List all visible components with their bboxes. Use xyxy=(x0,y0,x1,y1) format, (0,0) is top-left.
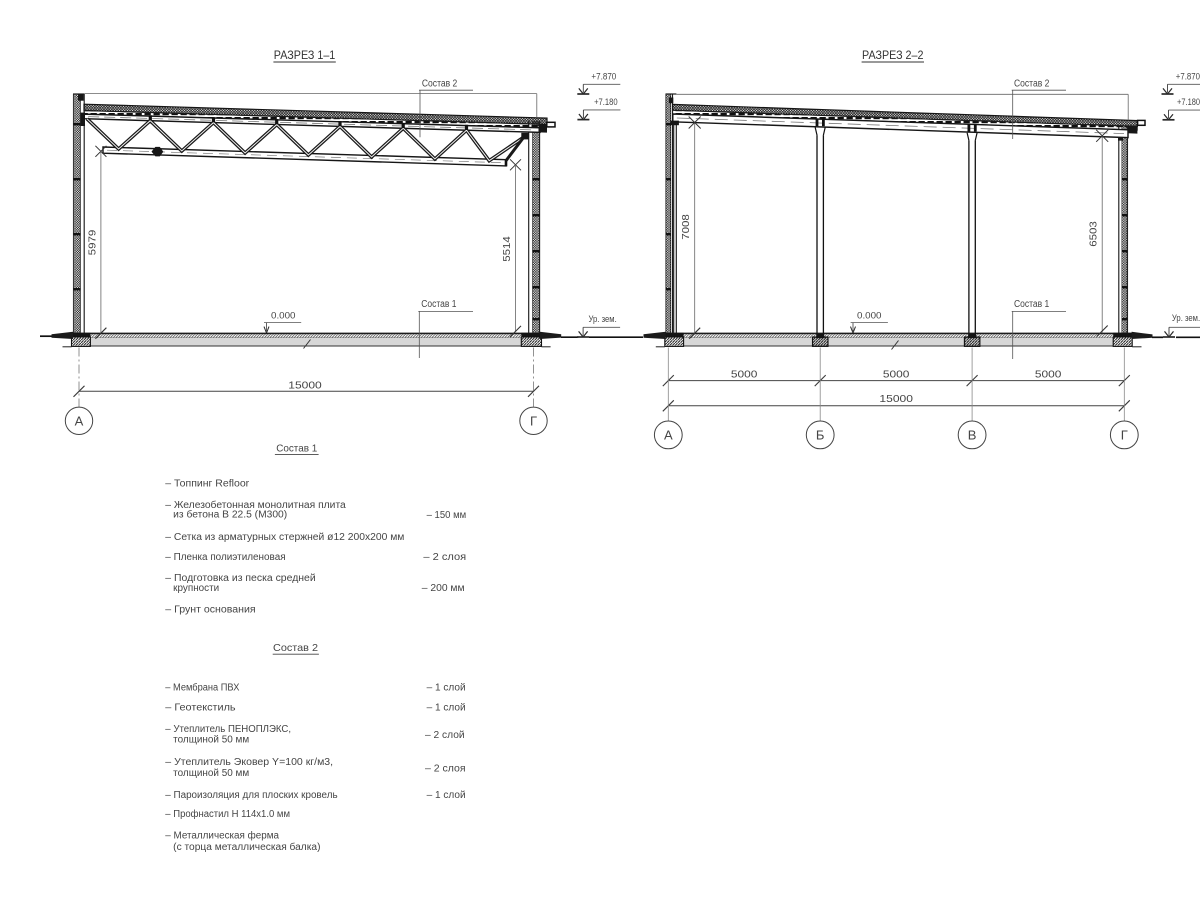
svg-text:Состав 1: Состав 1 xyxy=(276,444,317,455)
svg-text:5000: 5000 xyxy=(883,369,910,381)
svg-text:5979: 5979 xyxy=(88,229,99,255)
svg-text:из бетона В 22.5 (М300): из бетона В 22.5 (М300) xyxy=(173,510,287,521)
svg-text:15000: 15000 xyxy=(879,393,913,405)
svg-text:5514: 5514 xyxy=(502,236,513,262)
svg-text:толщиной 50 мм: толщиной 50 мм xyxy=(173,768,249,779)
svg-text:– Сетка из арматурных стержней: – Сетка из арматурных стержней ø12 200х2… xyxy=(165,532,404,543)
svg-text:– Грунт основания: – Грунт основания xyxy=(165,605,255,616)
svg-text:5000: 5000 xyxy=(731,369,758,381)
svg-text:Б: Б xyxy=(816,428,825,443)
svg-text:– Металлическая ферма: – Металлическая ферма xyxy=(165,831,279,842)
svg-text:Состав 1: Состав 1 xyxy=(421,299,456,310)
svg-text:Состав 2: Состав 2 xyxy=(1014,78,1049,89)
svg-text:Состав 1: Состав 1 xyxy=(1014,299,1049,310)
svg-text:Ур. зем.: Ур. зем. xyxy=(1172,313,1200,324)
svg-text:Г: Г xyxy=(530,414,537,429)
svg-text:Состав 2: Состав 2 xyxy=(273,643,318,654)
svg-text:– 1 слой: – 1 слой xyxy=(427,682,466,693)
svg-text:– 200 мм: – 200 мм xyxy=(422,583,465,594)
svg-text:(с торца металлическая балка): (с торца металлическая балка) xyxy=(173,842,320,853)
svg-text:5000: 5000 xyxy=(1035,369,1062,381)
svg-text:В: В xyxy=(968,428,977,443)
svg-text:РАЗРЕЗ 1–1: РАЗРЕЗ 1–1 xyxy=(274,48,336,62)
svg-text:7008: 7008 xyxy=(681,214,692,240)
svg-text:– Топпинг Refloor: – Топпинг Refloor xyxy=(165,478,250,489)
svg-text:толщиной 50 мм: толщиной 50 мм xyxy=(173,734,249,745)
svg-text:– 1 слой: – 1 слой xyxy=(427,790,466,801)
svg-text:– 2 слоя: – 2 слоя xyxy=(425,764,466,775)
svg-text:– Пароизоляция для плоских кро: – Пароизоляция для плоских кровель xyxy=(165,790,337,801)
svg-text:+7.180: +7.180 xyxy=(1177,97,1200,108)
svg-text:– 2 слой: – 2 слой xyxy=(425,730,465,741)
svg-text:– Мембрана ПВХ: – Мембрана ПВХ xyxy=(165,682,240,693)
svg-text:– Утеплитель ПЕНОПЛЭКС,: – Утеплитель ПЕНОПЛЭКС, xyxy=(165,724,291,735)
svg-text:Ур. зем.: Ур. зем. xyxy=(589,314,617,325)
svg-text:А: А xyxy=(664,428,673,443)
svg-text:6503: 6503 xyxy=(1088,221,1099,247)
svg-text:0.000: 0.000 xyxy=(271,311,296,322)
svg-text:Состав 2: Состав 2 xyxy=(422,78,457,89)
svg-text:0.000: 0.000 xyxy=(857,311,882,322)
svg-text:РАЗРЕЗ 2–2: РАЗРЕЗ 2–2 xyxy=(862,48,924,62)
svg-text:крупности: крупности xyxy=(173,583,219,594)
svg-text:– 150 мм: – 150 мм xyxy=(427,510,467,521)
svg-text:– 2 слоя: – 2 слоя xyxy=(423,552,466,563)
svg-text:+7.870: +7.870 xyxy=(591,71,616,82)
svg-text:Г: Г xyxy=(1121,428,1128,443)
svg-text:– Профнастил Н 114х1.0 мм: – Профнастил Н 114х1.0 мм xyxy=(165,809,290,820)
svg-text:– Геотекстиль: – Геотекстиль xyxy=(165,702,235,713)
svg-text:– 1 слой: – 1 слой xyxy=(427,702,466,713)
svg-text:– Утеплитель Эковер Y=100 кг/м: – Утеплитель Эковер Y=100 кг/м3, xyxy=(165,757,333,768)
svg-text:+7.180: +7.180 xyxy=(594,97,618,108)
svg-text:– Пленка полиэтиленовая: – Пленка полиэтиленовая xyxy=(165,552,285,563)
svg-text:+7.870: +7.870 xyxy=(1176,71,1200,82)
svg-text:А: А xyxy=(75,414,84,429)
svg-text:15000: 15000 xyxy=(288,379,322,391)
